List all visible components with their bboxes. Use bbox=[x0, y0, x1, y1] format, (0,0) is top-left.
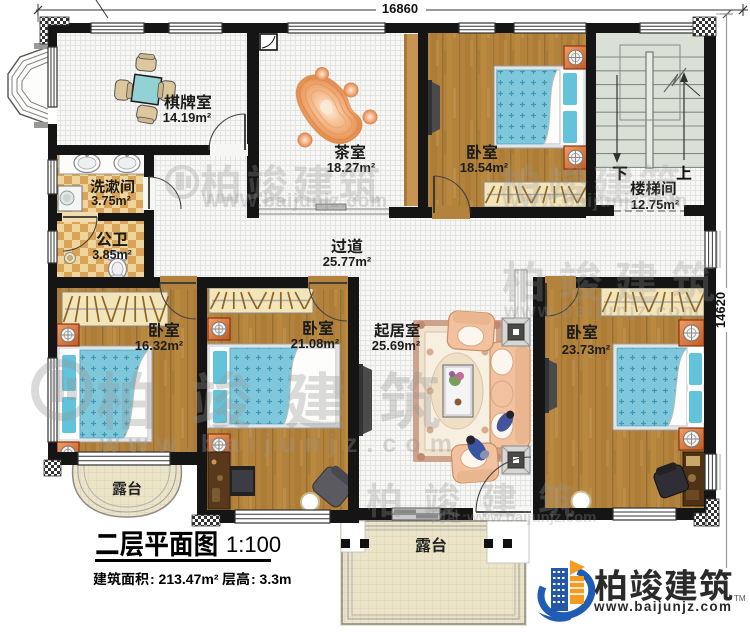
svg-text:14620: 14620 bbox=[713, 292, 728, 328]
svg-text:18.54m²: 18.54m² bbox=[460, 160, 509, 175]
svg-text:3.75m²: 3.75m² bbox=[91, 194, 131, 208]
svg-text:WWW.baijunjz.com: WWW.baijunjz.com bbox=[202, 191, 387, 212]
svg-text:21.08m²: 21.08m² bbox=[291, 336, 340, 351]
svg-text:1:100: 1:100 bbox=[226, 532, 281, 557]
svg-text:: 213.47m²: : 213.47m² bbox=[150, 571, 219, 587]
svg-text:14.19m²: 14.19m² bbox=[163, 110, 212, 125]
svg-text:3.85m²: 3.85m² bbox=[92, 248, 132, 262]
svg-text:23.73m²: 23.73m² bbox=[562, 342, 611, 357]
svg-text:16860: 16860 bbox=[382, 1, 418, 16]
svg-text:: 3.3m: : 3.3m bbox=[251, 571, 291, 587]
svg-text:16.32m²: 16.32m² bbox=[135, 338, 184, 353]
svg-text:www.baijunjz.com: www.baijunjz.com bbox=[593, 599, 733, 614]
svg-text:25.69m²: 25.69m² bbox=[372, 338, 421, 353]
svg-text:WWW.baijunjz.com: WWW.baijunjz.com bbox=[502, 191, 687, 212]
svg-text::www.baijunjz.com: :www.baijunjz.com bbox=[462, 509, 596, 526]
svg-text:25.77m²: 25.77m² bbox=[323, 254, 372, 269]
svg-text:TM: TM bbox=[734, 594, 746, 603]
